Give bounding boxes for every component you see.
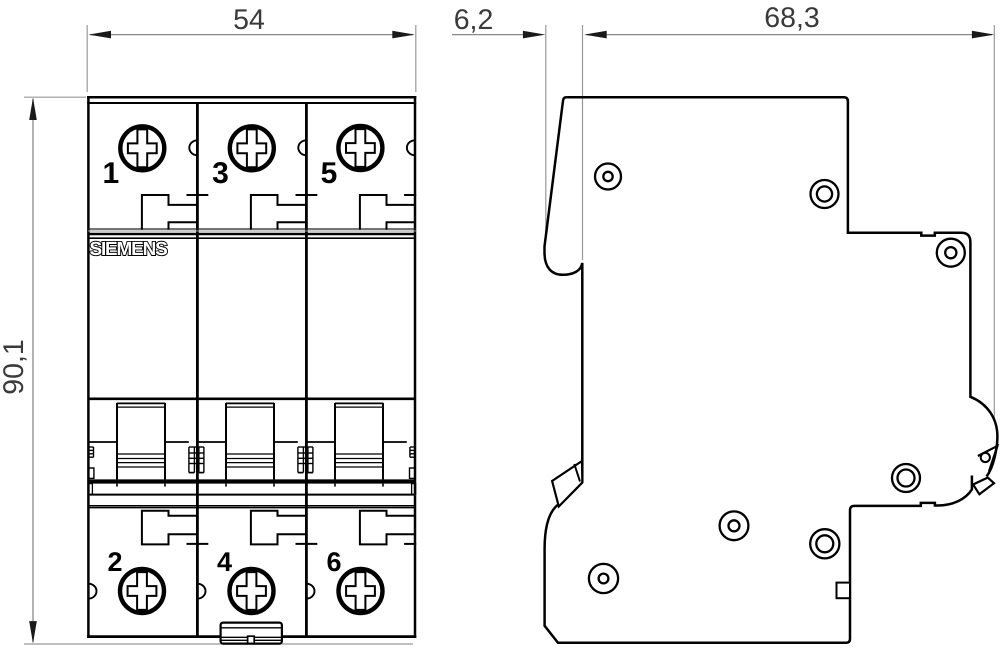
svg-text:4: 4: [217, 547, 232, 577]
svg-text:3: 3: [212, 157, 229, 190]
svg-text:6: 6: [326, 547, 341, 577]
svg-text:SIEMENS: SIEMENS: [90, 239, 169, 260]
svg-text:2: 2: [107, 547, 122, 577]
svg-text:90,1: 90,1: [0, 339, 30, 394]
svg-text:54: 54: [233, 4, 265, 36]
svg-text:1: 1: [103, 157, 120, 190]
svg-text:68,3: 68,3: [764, 2, 819, 34]
svg-text:5: 5: [321, 157, 338, 190]
svg-text:6,2: 6,2: [454, 4, 494, 36]
